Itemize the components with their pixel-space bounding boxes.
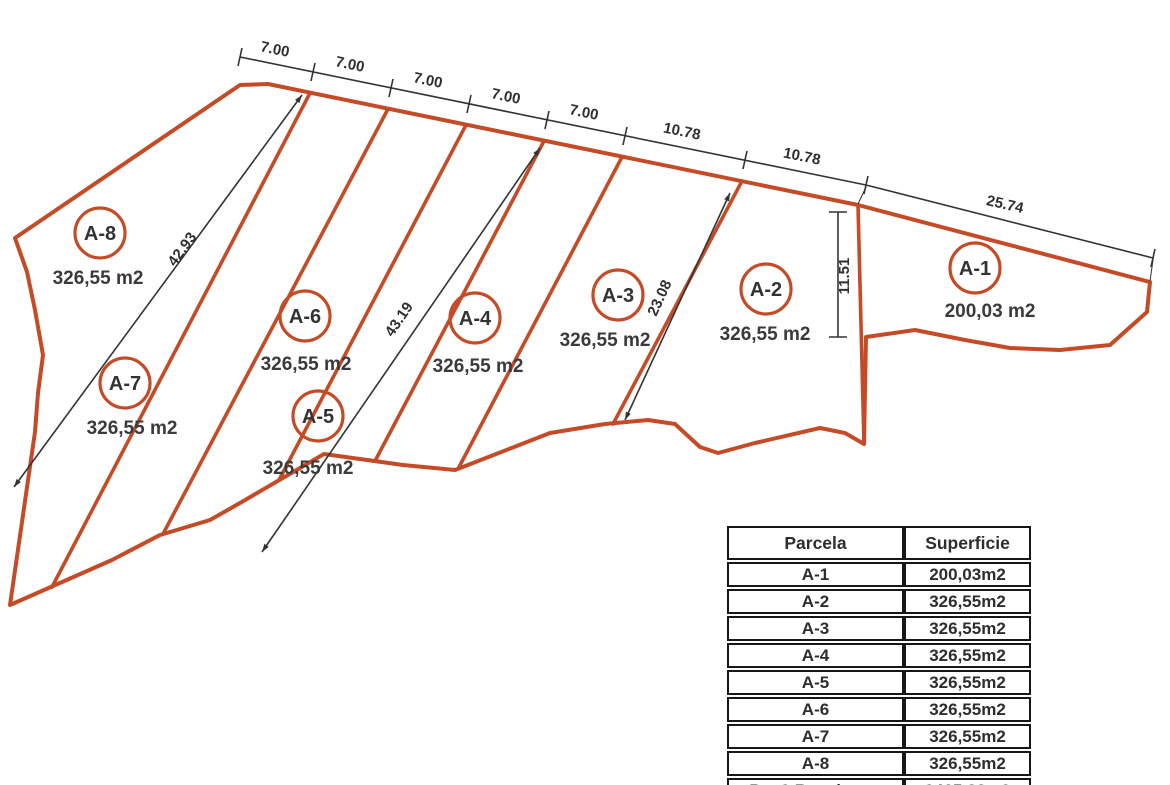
table-cell-parcel: A-3 — [727, 616, 904, 641]
top-dimension-labels: 7.00 7.00 7.00 7.00 7.00 10.78 10.78 25.… — [259, 38, 1026, 217]
parcel-marker-a3: A-3 326,55 m2 — [560, 270, 651, 351]
parcel-marker-a1: A-1 200,03 m2 — [945, 243, 1036, 322]
table-row: A-3 326,55m2 — [727, 616, 1031, 641]
parcel-id-a6: A-6 — [289, 306, 321, 328]
division-line-a2-a1 — [858, 205, 864, 444]
parcel-area-a5: 326,55 m2 — [263, 458, 354, 479]
table-cell-parcel: A-6 — [727, 697, 904, 722]
parcel-area-a8: 326,55 m2 — [53, 268, 144, 289]
table-row: A-2 326,55m2 — [727, 589, 1031, 614]
dim-label-11-51: 11.51 — [836, 258, 853, 295]
table-cell-area: 326,55m2 — [904, 724, 1031, 749]
table-cell-area: 2465,88m2 — [904, 778, 1031, 785]
dim-label-10-78-2: 10.78 — [782, 144, 822, 168]
parcel-id-a7: A-7 — [109, 373, 141, 395]
table-cell-area: 326,55m2 — [904, 670, 1031, 695]
dim-label-7-00-1: 7.00 — [259, 38, 291, 61]
table-header-parcela: Parcela — [727, 526, 904, 560]
parcel-id-a5: A-5 — [302, 406, 334, 428]
table-cell-area: 326,55m2 — [904, 589, 1031, 614]
parcel-id-a1: A-1 — [959, 258, 991, 280]
parcel-area-a1: 200,03 m2 — [945, 301, 1036, 322]
table-cell-area: 326,55m2 — [904, 751, 1031, 776]
table-cell-parcel: A-5 — [727, 670, 904, 695]
dim-label-7-00-4: 7.00 — [490, 85, 522, 108]
division-line-a5-a4 — [375, 141, 544, 461]
parcel-marker-a2: A-2 326,55 m2 — [720, 264, 811, 345]
dimension-chain-ticks — [238, 48, 1155, 267]
table-header-superficie: Superficie — [904, 526, 1031, 560]
parcel-id-a3: A-3 — [602, 285, 634, 307]
dim-label-10-78-1: 10.78 — [662, 119, 702, 143]
table-cell-parcel: A-8 — [727, 751, 904, 776]
table-cell-parcel: A-4 — [727, 643, 904, 668]
parcel-area-a3: 326,55 m2 — [560, 330, 651, 351]
table-row: A-1 200,03m2 — [727, 562, 1031, 587]
parcel-area-a6: 326,55 m2 — [261, 354, 352, 375]
parcel-markers: A-8 326,55 m2 A-7 326,55 m2 A-6 326,55 m… — [53, 208, 1036, 479]
table-row-resultante-partial: Par.2 Resultante 2465,88m2 — [727, 778, 1031, 785]
parcel-surface-table: Parcela Superficie A-1 200,03m2 A-2 326,… — [727, 524, 1031, 785]
table-header-row: Parcela Superficie — [727, 526, 1031, 560]
table-cell-parcel: A-2 — [727, 589, 904, 614]
table-row: A-5 326,55m2 — [727, 670, 1031, 695]
table-cell-area: 326,55m2 — [904, 697, 1031, 722]
dimension-chain-line — [240, 57, 1153, 258]
table-cell-area: 326,55m2 — [904, 616, 1031, 641]
plan-page: 7.00 7.00 7.00 7.00 7.00 10.78 10.78 25.… — [0, 0, 1170, 785]
table-row: A-7 326,55m2 — [727, 724, 1031, 749]
table-row: A-6 326,55m2 — [727, 697, 1031, 722]
parcel-id-a2: A-2 — [750, 279, 782, 301]
table-cell-area: 200,03m2 — [904, 562, 1031, 587]
parcel-marker-a4: A-4 326,55 m2 — [433, 293, 524, 377]
parcel-area-a4: 326,55 m2 — [433, 356, 524, 377]
table-row: A-4 326,55m2 — [727, 643, 1031, 668]
table-cell-parcel: A-1 — [727, 562, 904, 587]
table-cell-parcel: A-7 — [727, 724, 904, 749]
table-cell-area: 326,55m2 — [904, 643, 1031, 668]
parcel-marker-a6: A-6 326,55 m2 — [261, 291, 352, 375]
parcel-area-a7: 326,55 m2 — [87, 418, 178, 439]
extension-line-a1 — [858, 187, 866, 204]
dim-line-43-19 — [262, 148, 540, 552]
dim-label-7-00-3: 7.00 — [412, 69, 444, 92]
parcel-marker-a5: A-5 326,55 m2 — [263, 391, 354, 479]
dim-label-7-00-2: 7.00 — [334, 53, 366, 76]
table-cell-parcel: Par.2 Resultante — [727, 778, 904, 785]
dim-label-7-00-5: 7.00 — [568, 101, 600, 124]
division-line-a8-a7 — [52, 93, 310, 587]
parcel-area-a2: 326,55 m2 — [720, 324, 811, 345]
parcel-id-a4: A-4 — [459, 308, 492, 330]
parcel-id-a8: A-8 — [84, 223, 116, 245]
table-row: A-8 326,55m2 — [727, 751, 1031, 776]
dim-label-42-93: 42.93 — [164, 229, 200, 269]
dim-label-25-74: 25.74 — [985, 192, 1026, 217]
parcel-marker-a8: A-8 326,55 m2 — [53, 208, 144, 289]
